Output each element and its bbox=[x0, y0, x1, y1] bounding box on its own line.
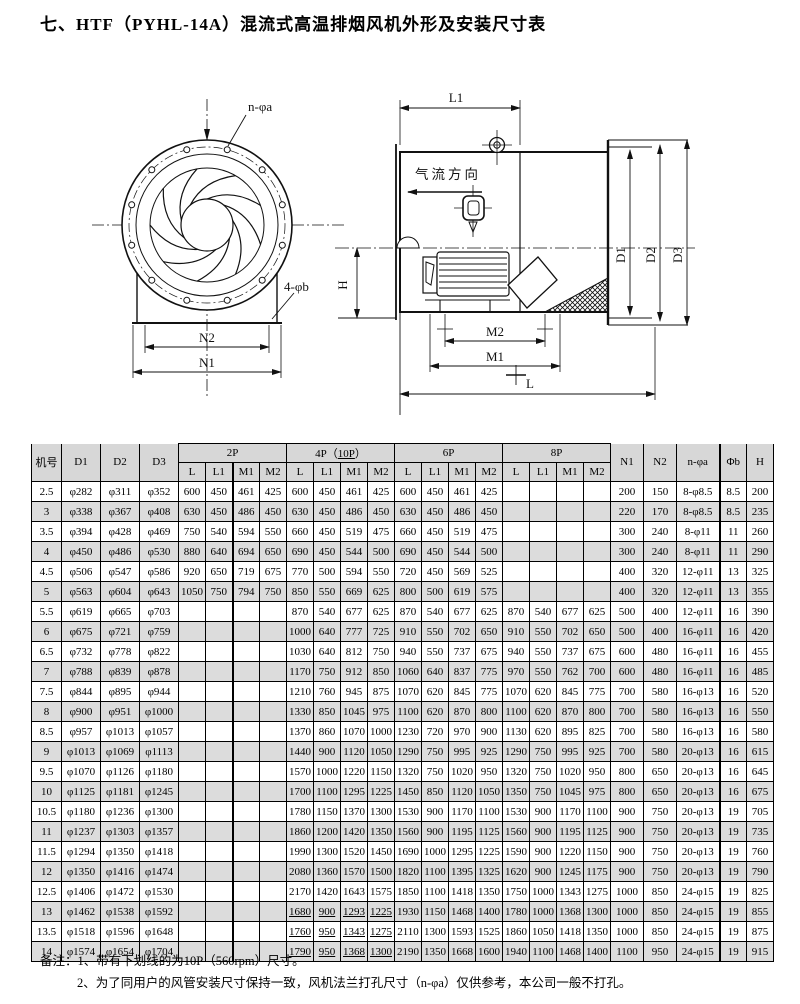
cell: 1295 bbox=[341, 782, 368, 802]
cell: 1418 bbox=[449, 882, 476, 902]
cell bbox=[233, 902, 260, 922]
cell: 1343 bbox=[557, 882, 584, 902]
table-row: 6.5φ732φ778φ8221030640812750940550737675… bbox=[32, 642, 774, 662]
cell: 544 bbox=[341, 542, 368, 562]
cell: 16 bbox=[720, 702, 747, 722]
cell: 320 bbox=[644, 562, 677, 582]
cell: 20-φ13 bbox=[677, 782, 720, 802]
label-n1: N1 bbox=[199, 355, 215, 370]
cell: φ282 bbox=[62, 482, 101, 502]
cell: 1525 bbox=[476, 922, 503, 942]
cell: 825 bbox=[747, 882, 774, 902]
cell: 645 bbox=[747, 762, 774, 782]
cell: 620 bbox=[530, 722, 557, 742]
cell: φ1013 bbox=[62, 742, 101, 762]
cell: 1225 bbox=[368, 902, 395, 922]
cell: φ951 bbox=[101, 702, 140, 722]
cell: φ1648 bbox=[140, 922, 179, 942]
cell bbox=[260, 822, 287, 842]
cell: 16-φ13 bbox=[677, 682, 720, 702]
cell bbox=[233, 842, 260, 862]
table-row: 9.5φ1070φ1126φ11801570100012201150132075… bbox=[32, 762, 774, 782]
header-fb: Φb bbox=[720, 444, 747, 482]
cell: 1050 bbox=[530, 922, 557, 942]
cell: 8-φ11 bbox=[677, 522, 720, 542]
cell: 544 bbox=[449, 542, 476, 562]
cell bbox=[557, 522, 584, 542]
cell: 690 bbox=[287, 542, 314, 562]
cell: 1070 bbox=[395, 682, 422, 702]
cell: 620 bbox=[422, 702, 449, 722]
cell: 702 bbox=[557, 622, 584, 642]
cell: 3.5 bbox=[32, 522, 62, 542]
cell bbox=[260, 742, 287, 762]
cell: 625 bbox=[584, 602, 611, 622]
table-row: 5.5φ619φ665φ7038705406776258705406776258… bbox=[32, 602, 774, 622]
cell: 450 bbox=[476, 502, 503, 522]
cell: 450 bbox=[422, 522, 449, 542]
cell: 1350 bbox=[584, 922, 611, 942]
cell: φ1236 bbox=[101, 802, 140, 822]
cell: 16-φ11 bbox=[677, 622, 720, 642]
cell: 650 bbox=[206, 562, 233, 582]
cell: 875 bbox=[368, 682, 395, 702]
cell: 1343 bbox=[341, 922, 368, 942]
cell: 16-φ11 bbox=[677, 642, 720, 662]
cell bbox=[530, 502, 557, 522]
label-l: L bbox=[526, 376, 534, 391]
cell: 594 bbox=[341, 562, 368, 582]
spec-table: 机号 D1 D2 D3 2P 4P（10P） 6P 8P N1 N2 n-φa … bbox=[31, 443, 774, 962]
cell bbox=[179, 802, 206, 822]
cell bbox=[233, 702, 260, 722]
cell: 12 bbox=[32, 862, 62, 882]
cell: 1500 bbox=[368, 862, 395, 882]
cell: 1100 bbox=[422, 882, 449, 902]
cell: 850 bbox=[287, 582, 314, 602]
cell: 2080 bbox=[287, 862, 314, 882]
cell: 475 bbox=[476, 522, 503, 542]
subheader: M1 bbox=[233, 463, 260, 482]
cell: 485 bbox=[747, 662, 774, 682]
cell: 540 bbox=[206, 522, 233, 542]
cell: 1000 bbox=[530, 882, 557, 902]
cell bbox=[584, 502, 611, 522]
cell: 450 bbox=[314, 542, 341, 562]
cell: 24-φ15 bbox=[677, 882, 720, 902]
cell: 910 bbox=[503, 622, 530, 642]
cell: 720 bbox=[422, 722, 449, 742]
cell: 1000 bbox=[530, 902, 557, 922]
cell bbox=[206, 722, 233, 742]
table-row: 5φ563φ604φ643105075079475085055066962580… bbox=[32, 582, 774, 602]
table-row: 12φ1350φ1416φ147420801360157015001820110… bbox=[32, 862, 774, 882]
cell: 750 bbox=[206, 582, 233, 602]
cell: 837 bbox=[449, 662, 476, 682]
cell: 900 bbox=[611, 822, 644, 842]
cell: 1368 bbox=[557, 902, 584, 922]
cell: 450 bbox=[368, 502, 395, 522]
cell: 20-φ13 bbox=[677, 842, 720, 862]
note-prefix: 备注： bbox=[40, 954, 78, 968]
cell bbox=[179, 602, 206, 622]
cell: 850 bbox=[644, 902, 677, 922]
cell: 20-φ13 bbox=[677, 802, 720, 822]
cell: 8 bbox=[32, 702, 62, 722]
cell: 900 bbox=[611, 862, 644, 882]
cell: 260 bbox=[747, 522, 774, 542]
subheader: M2 bbox=[368, 463, 395, 482]
cell: φ1180 bbox=[62, 802, 101, 822]
subheader: M2 bbox=[584, 463, 611, 482]
cell: 625 bbox=[476, 602, 503, 622]
cell: φ563 bbox=[62, 582, 101, 602]
cell bbox=[557, 562, 584, 582]
cell bbox=[206, 922, 233, 942]
cell: 1360 bbox=[314, 862, 341, 882]
cell: 519 bbox=[449, 522, 476, 542]
cell: 13 bbox=[720, 582, 747, 602]
cell: 950 bbox=[314, 922, 341, 942]
cell: 900 bbox=[611, 802, 644, 822]
cell bbox=[179, 642, 206, 662]
cell bbox=[503, 482, 530, 502]
cell bbox=[233, 782, 260, 802]
table-row: 10.5φ1180φ1236φ1300178011501370130015309… bbox=[32, 802, 774, 822]
table-row: 13φ1462φ1538φ159216809001293122519301150… bbox=[32, 902, 774, 922]
cell: 1820 bbox=[395, 862, 422, 882]
cell: 1575 bbox=[368, 882, 395, 902]
cell: 762 bbox=[557, 662, 584, 682]
label-base-holes: 4-φb bbox=[284, 279, 309, 294]
cell: 12-φ11 bbox=[677, 582, 720, 602]
cell: 1150 bbox=[422, 902, 449, 922]
cell: φ1406 bbox=[62, 882, 101, 902]
cell: 1220 bbox=[557, 842, 584, 862]
cell: 1593 bbox=[449, 922, 476, 942]
cell bbox=[179, 662, 206, 682]
cell: 950 bbox=[476, 762, 503, 782]
cell bbox=[206, 862, 233, 882]
cell: 970 bbox=[503, 662, 530, 682]
cell: 677 bbox=[449, 602, 476, 622]
cell: 700 bbox=[611, 682, 644, 702]
cell: 669 bbox=[341, 582, 368, 602]
cell: 1070 bbox=[341, 722, 368, 742]
cell: 800 bbox=[476, 702, 503, 722]
cell: 11 bbox=[32, 822, 62, 842]
cell: 16 bbox=[720, 642, 747, 662]
cell: φ1474 bbox=[140, 862, 179, 882]
cell: 650 bbox=[584, 622, 611, 642]
cell: 1195 bbox=[557, 822, 584, 842]
cell: 750 bbox=[179, 522, 206, 542]
cell: 540 bbox=[530, 602, 557, 622]
cell bbox=[260, 862, 287, 882]
cell: 975 bbox=[368, 702, 395, 722]
cell: 24-φ15 bbox=[677, 902, 720, 922]
cell: 945 bbox=[341, 682, 368, 702]
cell: 825 bbox=[584, 722, 611, 742]
cell: φ1300 bbox=[140, 802, 179, 822]
cell: 16 bbox=[720, 622, 747, 642]
cell: 525 bbox=[476, 562, 503, 582]
cell bbox=[233, 922, 260, 942]
cell: 1290 bbox=[503, 742, 530, 762]
cell: φ619 bbox=[62, 602, 101, 622]
cell bbox=[584, 562, 611, 582]
label-l1: L1 bbox=[449, 90, 463, 105]
cell: φ675 bbox=[62, 622, 101, 642]
cell: 1300 bbox=[584, 902, 611, 922]
cell: φ759 bbox=[140, 622, 179, 642]
cell: φ1125 bbox=[62, 782, 101, 802]
cell: 1050 bbox=[368, 742, 395, 762]
cell: 700 bbox=[611, 742, 644, 762]
notes: 备注：1、带有下划线的为10P（560rpm）尺寸。 2、为了同用户的风管安装尺… bbox=[40, 950, 780, 994]
cell: φ721 bbox=[101, 622, 140, 642]
cell: 975 bbox=[584, 782, 611, 802]
cell: 800 bbox=[395, 582, 422, 602]
cell bbox=[179, 882, 206, 902]
cell bbox=[233, 762, 260, 782]
cell: 450 bbox=[422, 482, 449, 502]
cell: 900 bbox=[422, 802, 449, 822]
cell: 850 bbox=[422, 782, 449, 802]
cell: φ1181 bbox=[101, 782, 140, 802]
cell: 475 bbox=[368, 522, 395, 542]
spec-table-body: 2.5φ282φ311φ3526004504614256004504614256… bbox=[32, 482, 774, 962]
header-group-2p: 2P bbox=[179, 444, 287, 463]
cell: 1230 bbox=[395, 722, 422, 742]
cell: 480 bbox=[644, 642, 677, 662]
cell: 920 bbox=[179, 562, 206, 582]
cell bbox=[179, 702, 206, 722]
cell: 1930 bbox=[395, 902, 422, 922]
cell: 620 bbox=[530, 682, 557, 702]
cell bbox=[179, 862, 206, 882]
cell bbox=[233, 742, 260, 762]
cell bbox=[179, 782, 206, 802]
cell: 630 bbox=[179, 502, 206, 522]
label-bolt-holes: n-φa bbox=[248, 99, 272, 114]
cell: 500 bbox=[422, 582, 449, 602]
cell: 150 bbox=[644, 482, 677, 502]
subheader: L bbox=[179, 463, 206, 482]
cell: 1100 bbox=[476, 802, 503, 822]
subheader: L bbox=[287, 463, 314, 482]
label-airflow: 气流方向 bbox=[415, 167, 481, 182]
cell: 10 bbox=[32, 782, 62, 802]
cell: 677 bbox=[341, 602, 368, 622]
cell: 1690 bbox=[395, 842, 422, 862]
cell: φ732 bbox=[62, 642, 101, 662]
cell: 1560 bbox=[503, 822, 530, 842]
cell: 850 bbox=[644, 882, 677, 902]
cell: 1060 bbox=[395, 662, 422, 682]
cell: φ1592 bbox=[140, 902, 179, 922]
cell: 750 bbox=[644, 802, 677, 822]
cell: 1275 bbox=[584, 882, 611, 902]
cell: 1150 bbox=[584, 842, 611, 862]
cell: 1300 bbox=[314, 842, 341, 862]
cell bbox=[206, 842, 233, 862]
cell: 1125 bbox=[584, 822, 611, 842]
cell: φ1350 bbox=[62, 862, 101, 882]
cell: 737 bbox=[557, 642, 584, 662]
cell: 800 bbox=[611, 762, 644, 782]
cell: 20-φ13 bbox=[677, 762, 720, 782]
subheader: L1 bbox=[314, 463, 341, 482]
cell: 675 bbox=[747, 782, 774, 802]
cell: 550 bbox=[530, 622, 557, 642]
cell: 900 bbox=[611, 842, 644, 862]
cell: φ878 bbox=[140, 662, 179, 682]
cell: φ1418 bbox=[140, 842, 179, 862]
cell: 995 bbox=[557, 742, 584, 762]
cell: φ1013 bbox=[101, 722, 140, 742]
cell: 1330 bbox=[287, 702, 314, 722]
cell: 1170 bbox=[287, 662, 314, 682]
cell: 1245 bbox=[557, 862, 584, 882]
cell: 1290 bbox=[395, 742, 422, 762]
header-na: n-φa bbox=[677, 444, 720, 482]
cell: 850 bbox=[368, 662, 395, 682]
cell: 900 bbox=[530, 842, 557, 862]
cell: 11 bbox=[720, 522, 747, 542]
cell: 1295 bbox=[449, 842, 476, 862]
cell: 719 bbox=[233, 562, 260, 582]
cell: 390 bbox=[747, 602, 774, 622]
cell bbox=[557, 482, 584, 502]
cell: 1170 bbox=[557, 802, 584, 822]
cell: 750 bbox=[422, 742, 449, 762]
cell: 450 bbox=[314, 482, 341, 502]
cell: 200 bbox=[611, 482, 644, 502]
cell: 705 bbox=[747, 802, 774, 822]
cell: 675 bbox=[584, 642, 611, 662]
cell: 2110 bbox=[395, 922, 422, 942]
cell bbox=[557, 582, 584, 602]
cell bbox=[233, 642, 260, 662]
cell: 1120 bbox=[449, 782, 476, 802]
cell: 1130 bbox=[503, 722, 530, 742]
cell: 619 bbox=[449, 582, 476, 602]
cell: 580 bbox=[644, 682, 677, 702]
cell: φ1180 bbox=[140, 762, 179, 782]
cell: 750 bbox=[422, 762, 449, 782]
cell: 1320 bbox=[503, 762, 530, 782]
cell: 750 bbox=[314, 662, 341, 682]
cell: 1350 bbox=[476, 882, 503, 902]
cell: 900 bbox=[476, 722, 503, 742]
table-row: 4φ450φ486φ530880640694650690450544500690… bbox=[32, 542, 774, 562]
cell: φ486 bbox=[101, 542, 140, 562]
cell: 1420 bbox=[314, 882, 341, 902]
header-d1: D1 bbox=[62, 444, 101, 482]
cell: 1000 bbox=[368, 722, 395, 742]
label-m1: M1 bbox=[486, 349, 504, 364]
cell: 16-φ13 bbox=[677, 702, 720, 722]
cell: 620 bbox=[530, 702, 557, 722]
cell: 690 bbox=[395, 542, 422, 562]
cell: 240 bbox=[644, 522, 677, 542]
subheader: L bbox=[395, 463, 422, 482]
cell: 1450 bbox=[368, 842, 395, 862]
table-row: 2.5φ282φ311φ3526004504614256004504614256… bbox=[32, 482, 774, 502]
cell: φ1126 bbox=[101, 762, 140, 782]
cell: 1750 bbox=[503, 882, 530, 902]
table-row: 8φ900φ951φ100013308501045975110062087080… bbox=[32, 702, 774, 722]
cell: 870 bbox=[503, 602, 530, 622]
cell: φ408 bbox=[140, 502, 179, 522]
cell bbox=[233, 662, 260, 682]
cell: 925 bbox=[476, 742, 503, 762]
table-row: 11.5φ1294φ1350φ1418199013001520145016901… bbox=[32, 842, 774, 862]
cell bbox=[584, 542, 611, 562]
cell: 400 bbox=[611, 582, 644, 602]
cell: φ1303 bbox=[101, 822, 140, 842]
cell bbox=[206, 762, 233, 782]
label-m2: M2 bbox=[486, 324, 504, 339]
cell: 1450 bbox=[395, 782, 422, 802]
table-row: 10φ1125φ1181φ124517001100129512251450850… bbox=[32, 782, 774, 802]
cell: 770 bbox=[287, 562, 314, 582]
cell: 1000 bbox=[611, 922, 644, 942]
table-row: 4.5φ506φ547φ5869206507196757705005945507… bbox=[32, 562, 774, 582]
cell: 450 bbox=[422, 562, 449, 582]
cell: 19 bbox=[720, 822, 747, 842]
cell: 850 bbox=[314, 702, 341, 722]
table-row: 7φ788φ839φ878117075091285010606408377759… bbox=[32, 662, 774, 682]
cell: 550 bbox=[260, 522, 287, 542]
cell bbox=[260, 922, 287, 942]
cell: 675 bbox=[476, 642, 503, 662]
cell bbox=[206, 802, 233, 822]
subheader: M1 bbox=[341, 463, 368, 482]
cell: φ394 bbox=[62, 522, 101, 542]
cell: 1293 bbox=[341, 902, 368, 922]
cell: 8.5 bbox=[720, 502, 747, 522]
cell: 1350 bbox=[368, 822, 395, 842]
cell: φ1000 bbox=[140, 702, 179, 722]
cell: φ506 bbox=[62, 562, 101, 582]
cell: 1000 bbox=[611, 882, 644, 902]
cell: 675 bbox=[260, 562, 287, 582]
cell: 16 bbox=[720, 762, 747, 782]
cell: 240 bbox=[644, 542, 677, 562]
cell bbox=[530, 482, 557, 502]
cell: 875 bbox=[747, 922, 774, 942]
cell: 970 bbox=[449, 722, 476, 742]
cell: 594 bbox=[233, 522, 260, 542]
cell: 760 bbox=[747, 842, 774, 862]
cell: φ665 bbox=[101, 602, 140, 622]
cell: 850 bbox=[644, 922, 677, 942]
cell: 1860 bbox=[503, 922, 530, 942]
cell: 9.5 bbox=[32, 762, 62, 782]
cell: 1780 bbox=[503, 902, 530, 922]
cell: 461 bbox=[341, 482, 368, 502]
cell bbox=[206, 682, 233, 702]
cell: φ547 bbox=[101, 562, 140, 582]
cell: 737 bbox=[449, 642, 476, 662]
cell: 600 bbox=[179, 482, 206, 502]
cell: 1050 bbox=[179, 582, 206, 602]
cell: 11 bbox=[720, 542, 747, 562]
document-page: 七、HTF（PYHL-14A）混流式高温排烟风机外形及安装尺寸表 bbox=[0, 0, 800, 1004]
cell: 4 bbox=[32, 542, 62, 562]
